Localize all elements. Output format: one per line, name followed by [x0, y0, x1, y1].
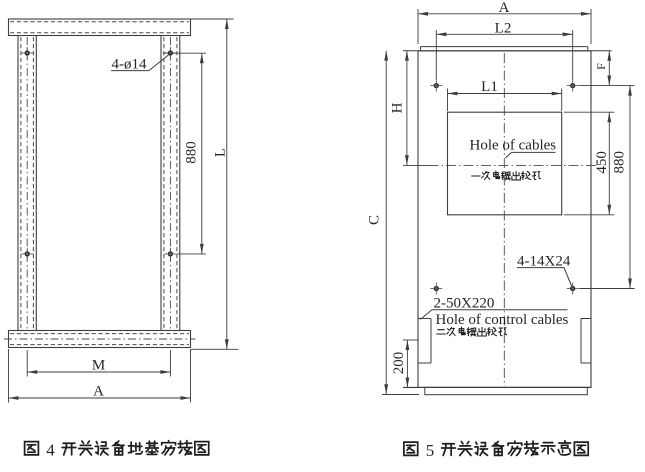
svg-text:H: H	[390, 102, 406, 113]
svg-text:880: 880	[183, 141, 199, 164]
svg-text:2-50X220: 2-50X220	[434, 296, 495, 312]
svg-text:Hole of control cables: Hole of control cables	[436, 312, 569, 328]
svg-text:L2: L2	[495, 21, 512, 37]
svg-text:C: C	[367, 215, 383, 225]
svg-text:A: A	[499, 0, 510, 16]
svg-text:5: 5	[426, 441, 435, 460]
svg-text:L1: L1	[481, 79, 498, 95]
svg-text:Hole of cables: Hole of cables	[470, 138, 557, 154]
svg-text:4: 4	[46, 441, 55, 460]
svg-text:L: L	[212, 148, 228, 157]
svg-text:M: M	[92, 358, 105, 374]
svg-text:450: 450	[594, 151, 610, 174]
svg-text:880: 880	[611, 151, 627, 174]
svg-text:A: A	[93, 384, 104, 400]
svg-text:F: F	[594, 63, 608, 70]
svg-text:200: 200	[391, 352, 407, 375]
